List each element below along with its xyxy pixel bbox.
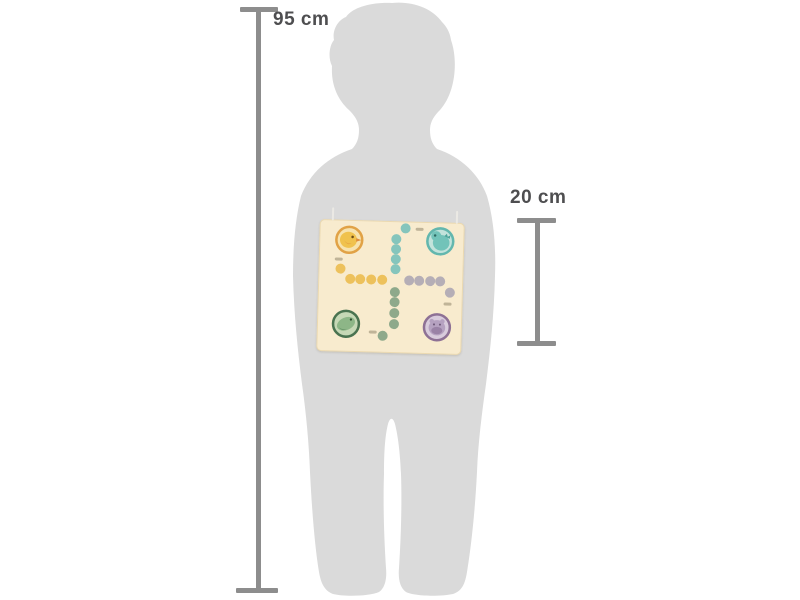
board-dot-green [389,319,399,329]
board-dot-yellow [366,274,376,284]
board-string-right [456,211,458,224]
ruler-line [535,221,540,342]
board-marking [369,330,377,333]
hippo-icon [421,312,452,343]
crocodile-icon [331,308,362,339]
board-dot-green [389,297,399,307]
board-dot-teal [391,234,401,244]
board-dot-teal [391,244,401,254]
board-corner-duck [334,224,365,255]
duck-icon [334,224,365,255]
ruler-cap-bottom [517,341,556,346]
board-corner-dino [425,226,456,257]
board-dot-green [377,331,387,341]
product-size-diagram: 95 cm 20 cm [0,0,800,600]
board-marking [444,302,452,305]
board-dot-yellow [345,274,355,284]
board-dot-yellow [355,274,365,284]
board-dot-green [390,287,400,297]
board-dot-teal [401,223,411,233]
board-dot-gray [425,276,435,286]
board-dot-teal [390,264,400,274]
ruler-line [256,9,261,590]
board-dot-gray [404,275,414,285]
child-height-label: 95 cm [273,9,329,31]
board-corner-crocodile [331,308,362,339]
dinosaur-icon [425,226,456,257]
ludo-game-board [316,219,465,355]
board-dot-gray [435,276,445,286]
board-dot-teal [391,254,401,264]
ruler-cap-bottom [236,588,278,593]
board-dot-yellow [335,263,345,273]
board-marking [416,228,424,231]
board-corner-hippo [421,312,452,343]
board-marking [335,257,343,260]
board-height-label: 20 cm [510,187,566,209]
board-dot-yellow [377,275,387,285]
board-dot-green [389,308,399,318]
board-dot-gray [414,276,424,286]
board-dot-gray [445,288,455,298]
board-string-left [332,207,334,220]
